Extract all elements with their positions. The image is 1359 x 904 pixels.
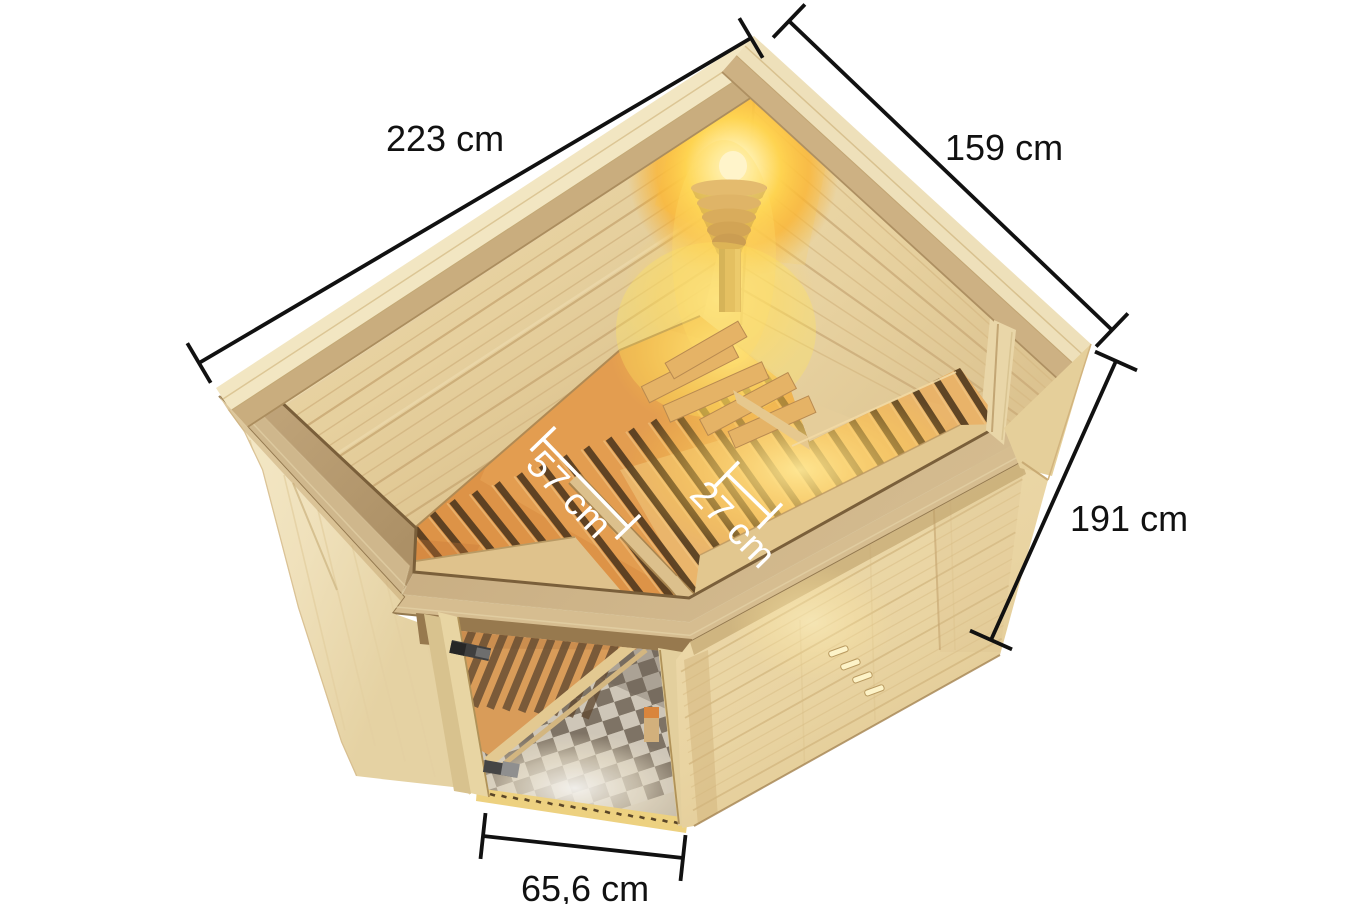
svg-text:159 cm: 159 cm [945, 127, 1063, 168]
svg-text:65,6 cm: 65,6 cm [521, 868, 649, 904]
svg-text:223 cm: 223 cm [386, 118, 504, 159]
svg-text:191 cm: 191 cm [1070, 498, 1188, 539]
